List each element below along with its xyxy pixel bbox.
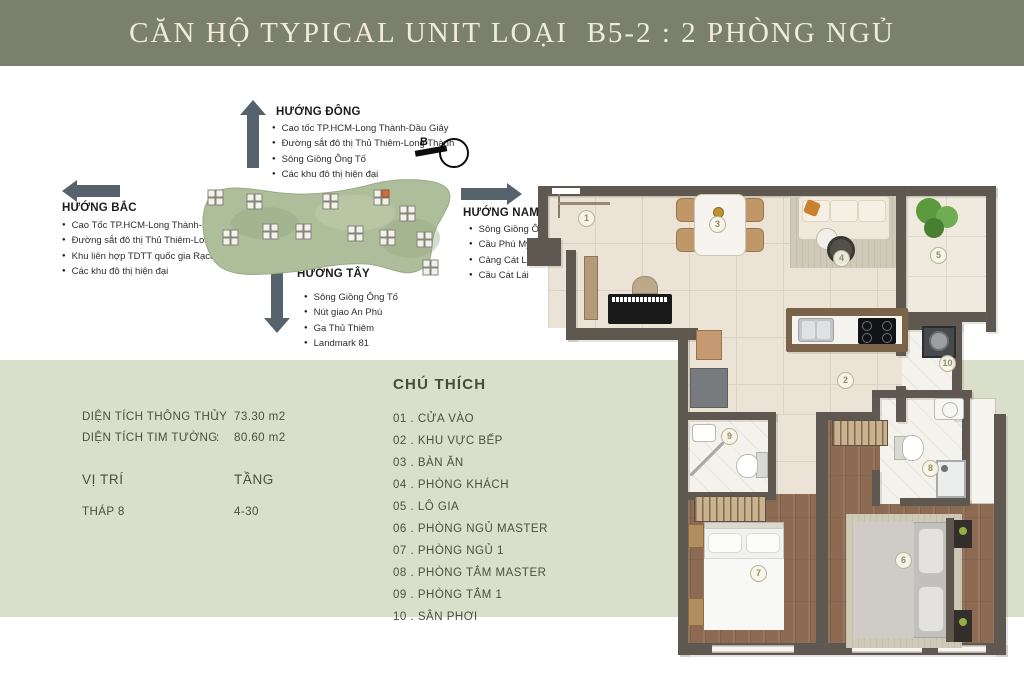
shower (936, 460, 966, 498)
marker-bathroom1: 9 (721, 428, 738, 445)
marker-master-bathroom: 8 (922, 460, 939, 477)
dining-chair (676, 228, 696, 252)
sofa-cushion (858, 200, 886, 222)
wardrobe (694, 496, 766, 522)
toilet (902, 435, 924, 461)
wall (768, 412, 776, 500)
entry-door-opening (552, 188, 580, 194)
wall (872, 390, 972, 398)
wall (872, 470, 880, 506)
sink-basin (817, 321, 830, 339)
entry-console (558, 202, 610, 205)
dining-chair (744, 198, 764, 222)
wall (688, 412, 776, 420)
burner (862, 333, 872, 343)
plant-icon (959, 618, 967, 626)
washer-drum (929, 331, 949, 351)
master-headboard (946, 518, 954, 642)
pillow (746, 533, 780, 553)
shoe-cabinet (584, 256, 598, 320)
floorplan-brochure: CĂN HỘ TYPICAL UNIT LOẠI B5-2 : 2 PHÒNG … (0, 0, 1024, 683)
marker-entrance: 1 (578, 210, 595, 227)
marker-master-bedroom: 6 (895, 552, 912, 569)
cabinet (696, 330, 722, 360)
shower-head (941, 465, 948, 472)
sofa-cushion (830, 200, 858, 222)
wall (527, 238, 561, 266)
wall (816, 412, 828, 643)
piano-bench (632, 276, 658, 294)
window (712, 645, 794, 653)
bathroom1-sink (692, 424, 716, 442)
wall (994, 414, 1006, 655)
fridge (690, 368, 728, 408)
marker-bedroom1: 7 (750, 565, 767, 582)
marker-living: 4 (833, 250, 850, 267)
master-blanket (854, 522, 914, 638)
hallway-floor (772, 414, 816, 500)
sink-basin (942, 402, 958, 418)
wall (678, 328, 688, 655)
burner (862, 321, 872, 331)
burner (882, 333, 892, 343)
wall (896, 186, 906, 322)
burner (882, 321, 892, 331)
sink-basin (802, 321, 815, 339)
window-nook (968, 398, 996, 504)
nightstand (688, 598, 704, 626)
wall (828, 412, 876, 420)
plant-icon (959, 527, 967, 535)
pillow (708, 533, 742, 553)
marker-kitchen: 2 (837, 372, 854, 389)
entry-door-leaf (558, 194, 560, 218)
nightstand (688, 524, 704, 548)
dining-chair (744, 228, 764, 252)
pillow (918, 528, 944, 574)
piano-keys (612, 297, 668, 302)
marker-dining: 3 (709, 216, 726, 233)
marker-balcony: 5 (930, 247, 947, 264)
bed1-blanket (704, 558, 784, 630)
wall (900, 498, 970, 506)
pillow (918, 586, 944, 632)
wall (566, 250, 576, 340)
shower-glass (690, 442, 724, 476)
wardrobe (832, 420, 888, 446)
wall (986, 186, 996, 332)
wall (538, 186, 996, 196)
dining-chair (676, 198, 696, 222)
plant-icon (924, 218, 944, 238)
marker-laundry: 10 (939, 355, 956, 372)
wall (906, 312, 986, 322)
nightstand (954, 610, 972, 642)
floor-plan: 1 2 3 4 5 6 7 8 9 10 (0, 0, 1024, 683)
toilet (736, 454, 758, 478)
